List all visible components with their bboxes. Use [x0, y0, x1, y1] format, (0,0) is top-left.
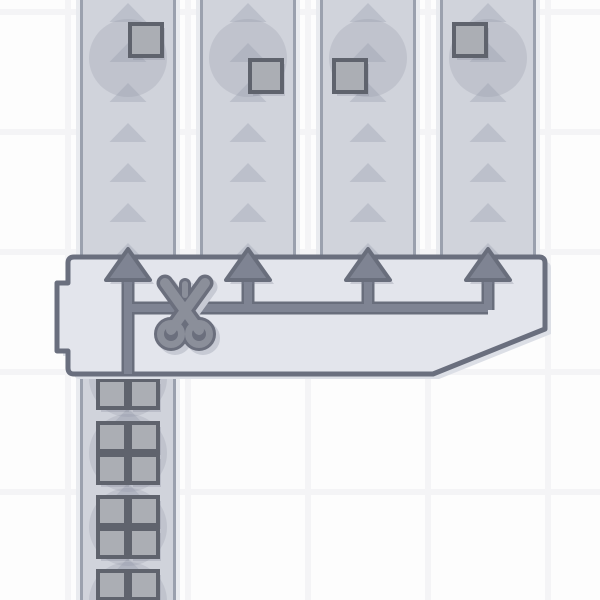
item-quarter-square — [98, 529, 126, 557]
item-quarter-square — [334, 60, 366, 92]
belt-edge — [200, 0, 203, 262]
belt-edge — [80, 372, 83, 600]
belt-shadow — [296, 0, 300, 262]
item-quarter-square — [130, 380, 158, 408]
game-screen — [0, 0, 600, 600]
shape-item-quarter-bottom-right — [209, 19, 287, 97]
shape-item-full-square — [89, 414, 167, 492]
item-quarter-square — [454, 24, 486, 56]
shape-item-full-square — [89, 488, 167, 566]
item-quarter-square — [130, 455, 158, 483]
belt-edge — [320, 0, 323, 262]
belt-edge — [80, 0, 83, 262]
belt-edge — [173, 0, 176, 262]
item-quarter-square — [130, 571, 158, 599]
belt-shadow — [436, 0, 440, 262]
belt-edge — [413, 0, 416, 262]
belt-edge — [440, 0, 443, 262]
belt-shadow — [536, 0, 540, 262]
item-quarter-square — [98, 497, 126, 525]
shape-item-quarter-top-right — [89, 19, 167, 97]
shape-item-quarter-bottom-left — [329, 19, 407, 97]
belt-edge — [533, 0, 536, 262]
belt-shadow — [196, 0, 200, 262]
belt-edge — [173, 372, 176, 600]
belt-shadow — [76, 0, 80, 262]
belt-shadow — [416, 0, 420, 262]
belt-shadow — [176, 0, 180, 262]
item-quarter-square — [130, 423, 158, 451]
belt-shadow — [316, 0, 320, 262]
item-quarter-square — [98, 423, 126, 451]
shape-item-quarter-top-left — [449, 19, 527, 97]
belt-shadow — [76, 372, 80, 600]
item-quarter-square — [250, 60, 282, 92]
item-quarter-square — [98, 380, 126, 408]
belt-shadow — [176, 372, 180, 600]
game-viewport[interactable] — [0, 0, 600, 600]
item-quarter-square — [130, 529, 158, 557]
item-quarter-square — [130, 24, 162, 56]
item-quarter-square — [130, 497, 158, 525]
belt-edge — [293, 0, 296, 262]
item-quarter-square — [98, 455, 126, 483]
item-quarter-square — [98, 571, 126, 599]
